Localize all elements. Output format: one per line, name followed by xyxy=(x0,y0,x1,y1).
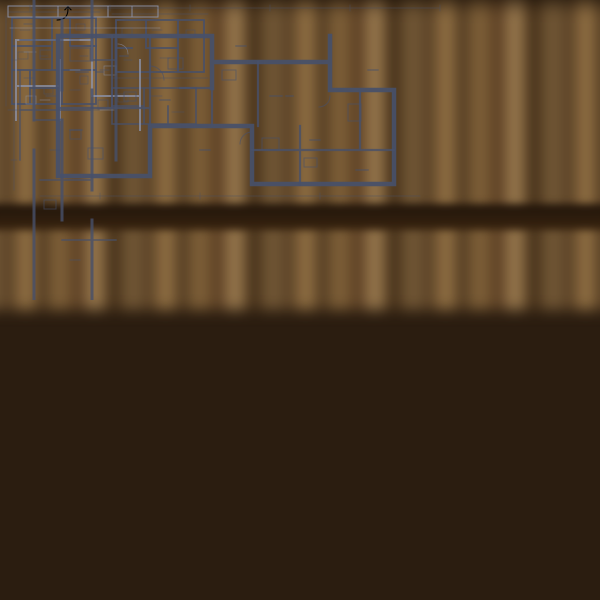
photo-architect-desk: ⤴ xyxy=(0,0,600,600)
